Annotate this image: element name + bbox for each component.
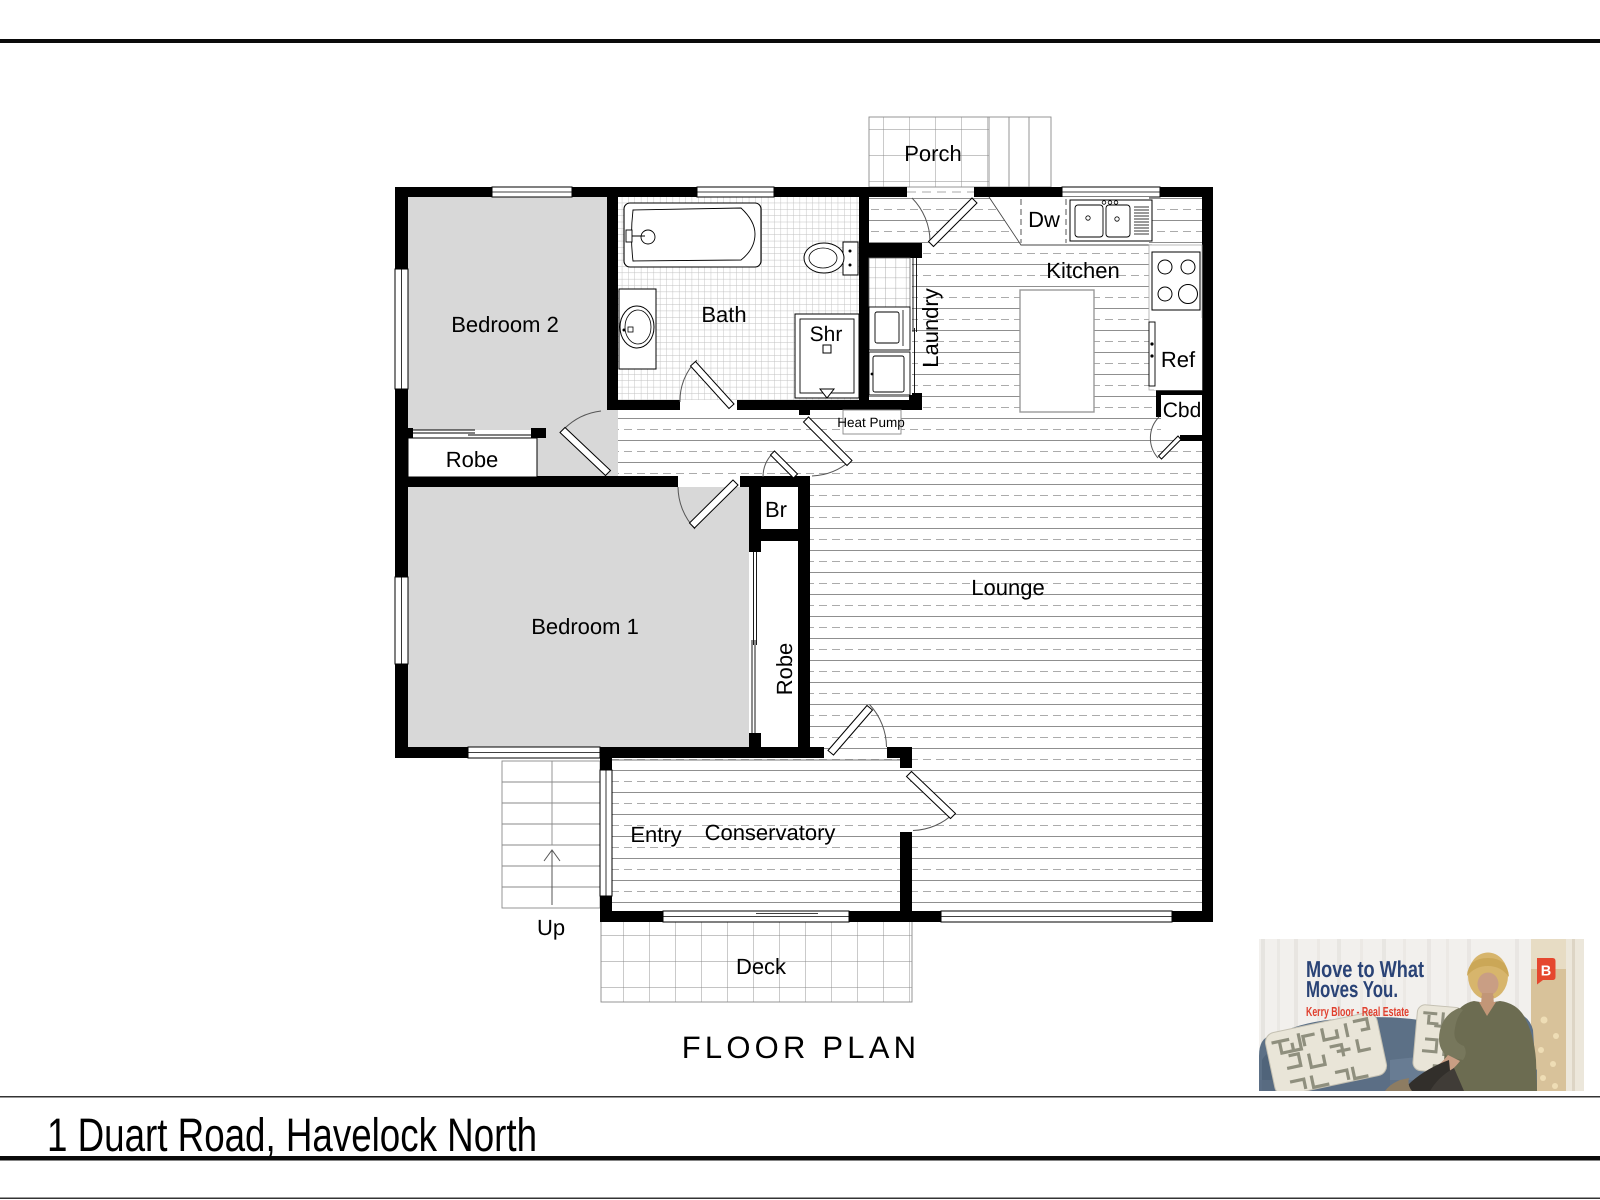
svg-text:Deck: Deck xyxy=(736,954,787,979)
svg-text:Lounge: Lounge xyxy=(971,575,1044,600)
svg-text:Up: Up xyxy=(537,915,565,940)
svg-text:Heat Pump: Heat Pump xyxy=(837,415,905,430)
svg-text:FLOOR PLAN: FLOOR PLAN xyxy=(682,1030,920,1065)
svg-text:Robe: Robe xyxy=(446,447,499,472)
svg-text:Laundry: Laundry xyxy=(918,288,943,368)
svg-text:Bedroom 1: Bedroom 1 xyxy=(531,614,639,639)
svg-text:Ref: Ref xyxy=(1161,347,1196,372)
svg-text:Dw: Dw xyxy=(1028,207,1060,232)
svg-text:Shr: Shr xyxy=(810,323,843,346)
svg-text:B: B xyxy=(1541,964,1551,980)
svg-text:Br: Br xyxy=(765,497,787,522)
svg-text:Conservatory: Conservatory xyxy=(705,820,836,845)
svg-text:Kitchen: Kitchen xyxy=(1046,258,1119,283)
svg-text:Bath: Bath xyxy=(701,302,746,327)
svg-text:Porch: Porch xyxy=(904,141,961,166)
svg-text:Kerry Bloor - Real Estate: Kerry Bloor - Real Estate xyxy=(1306,1004,1409,1019)
svg-text:Moves You.: Moves You. xyxy=(1306,976,1398,1002)
svg-text:1 Duart Road, Havelock North: 1 Duart Road, Havelock North xyxy=(47,1108,537,1161)
svg-text:Cbd: Cbd xyxy=(1163,399,1202,422)
svg-text:Robe: Robe xyxy=(772,643,797,696)
svg-text:Bedroom 2: Bedroom 2 xyxy=(451,312,559,337)
svg-text:Entry: Entry xyxy=(630,822,681,847)
